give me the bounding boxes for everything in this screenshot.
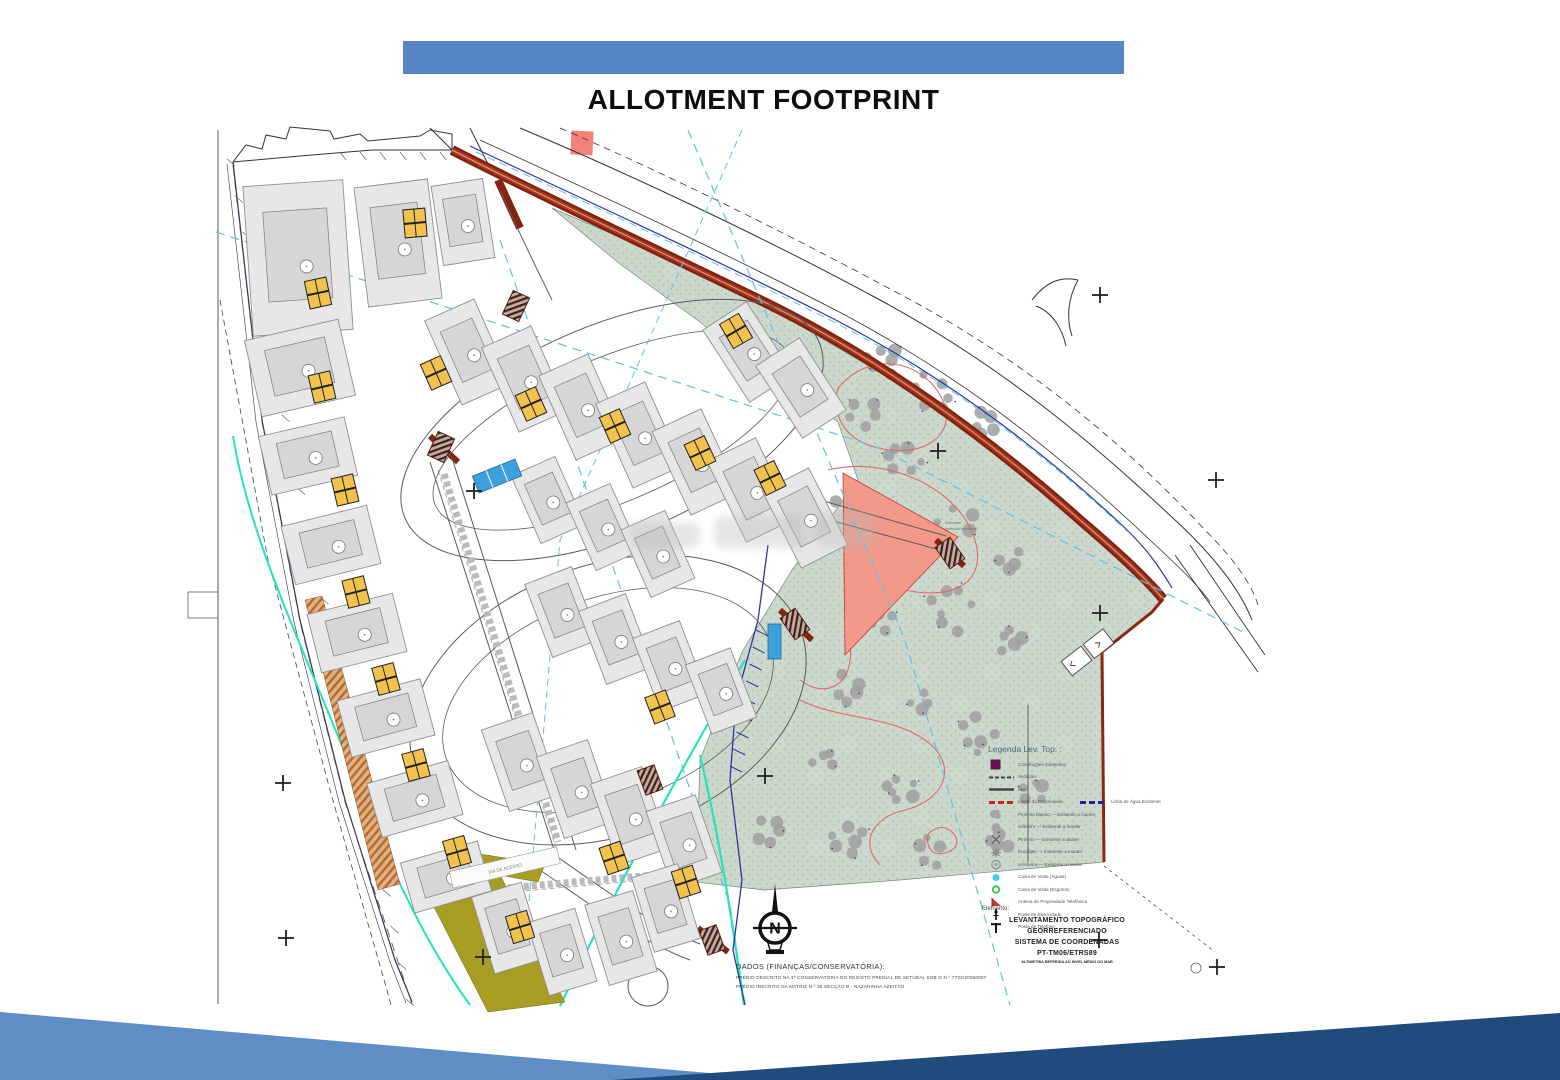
legend-item: Limite da PropriedadeLinha de Água Exist… [988,797,1173,808]
garage-box [403,208,427,238]
line-solid-icon [988,784,1016,795]
legend-label: Eucalipto — Existente a manter [1018,849,1082,854]
line-dashed-icon [988,772,1016,783]
dot-cyan-icon [988,872,1016,883]
tree-ring-icon [988,859,1016,870]
crosswalk-marker [699,925,725,956]
tree-gear-icon [988,847,1016,858]
legend-label: Pinheiro — Existente a abater [1018,837,1079,842]
presentation-slide: ALLOTMENT FOOTPRINT [0,0,1560,1080]
tree-x-icon [988,834,1016,845]
tree-cluster-icon [988,809,1016,820]
legend-title: Legenda Lev. Top. : [988,744,1173,754]
legend-label: Caixa de Visita (Esgotos) [1018,887,1070,892]
garage-box [331,474,359,506]
ring-green-icon [988,884,1016,895]
legend-label: Limite da Propriedade [1018,799,1063,804]
legend-item: Pinheiro — Existente a abater [988,834,1173,845]
legend-item: Caixa de Visita (Águas) [988,872,1173,883]
legend-label: Antena de Propriedade Telefónica [1018,899,1087,904]
element-line: PT-TM06/ETRS89 [982,949,1152,960]
tree-round-icon [988,822,1016,833]
plot-parcel [621,510,695,597]
element-heading: Elemento: [982,906,1152,912]
element-block: Elemento: LEVANTAMENTO TOPOGRÁFICO GEORR… [982,906,1152,964]
element-line: SISTEMA DE COORDENADAS [982,938,1152,949]
legend-item: Azinheira — Existente a manter [988,859,1173,870]
line-blue-dashed-icon [1079,797,1107,808]
dados-block: DADOS (FINANÇAS/CONSERVATÓRIA): PRÉDIO D… [736,962,1046,989]
dados-heading: DADOS (FINANÇAS/CONSERVATÓRIA): [736,962,1046,971]
legend-label: Sobreiro — Existente a manter [1018,824,1081,829]
element-line: LEVANTAMENTO TOPOGRÁFICO [982,916,1152,927]
legend-label: Azinheira — Existente a manter [1018,862,1083,867]
dados-line: PRÉDIO DESCRITO NA 2ª CONSERVATÓRIA DO R… [736,975,1046,980]
element-line: GEORREFERENCIADO [982,927,1152,938]
legend-item: Construções Existentes [988,759,1173,770]
square-purple-icon [988,759,1016,770]
dados-line: PRÉDIO INSCRITO NA MATRIZ N.º 35 SECÇÃO … [736,984,1046,989]
legend-item: Sobreiro — Existente a manter [988,822,1173,833]
legend-item: Vedação [988,772,1173,783]
plot-parcel [431,178,495,265]
park-note-line1: Sobrante [945,520,962,525]
degree-mark [1191,963,1201,973]
legend-label: Vedação [1018,774,1036,779]
legend-label: Caixa de Visita (Águas) [1018,874,1066,879]
plot-parcel [354,179,442,307]
crosswalk-marker [502,290,529,321]
legend-item: Muro [988,784,1173,795]
garage-box [342,576,370,608]
site-plan-figure: Sobrante Em Recuperação Ambiental [0,0,1560,1080]
legend-label: Linha de Água Existente [1111,799,1161,804]
north-arrow-icon: N [753,884,797,954]
legend-item: Pinheiro Manso — Existente a manter [988,809,1173,820]
legend-label: Construções Existentes [1018,762,1066,767]
legend-label: Muro [1018,787,1028,792]
line-red-dashed-icon [988,797,1016,808]
plot-parcel [243,180,353,337]
legend-item: Eucalipto — Existente a manter [988,847,1173,858]
legend-item: Caixa de Visita (Esgotos) [988,884,1173,895]
plot-parcel [281,505,381,585]
plan-frame [188,130,218,1004]
north-letter: N [769,921,781,938]
legend-label: Pinheiro Manso — Existente a manter [1018,812,1095,817]
